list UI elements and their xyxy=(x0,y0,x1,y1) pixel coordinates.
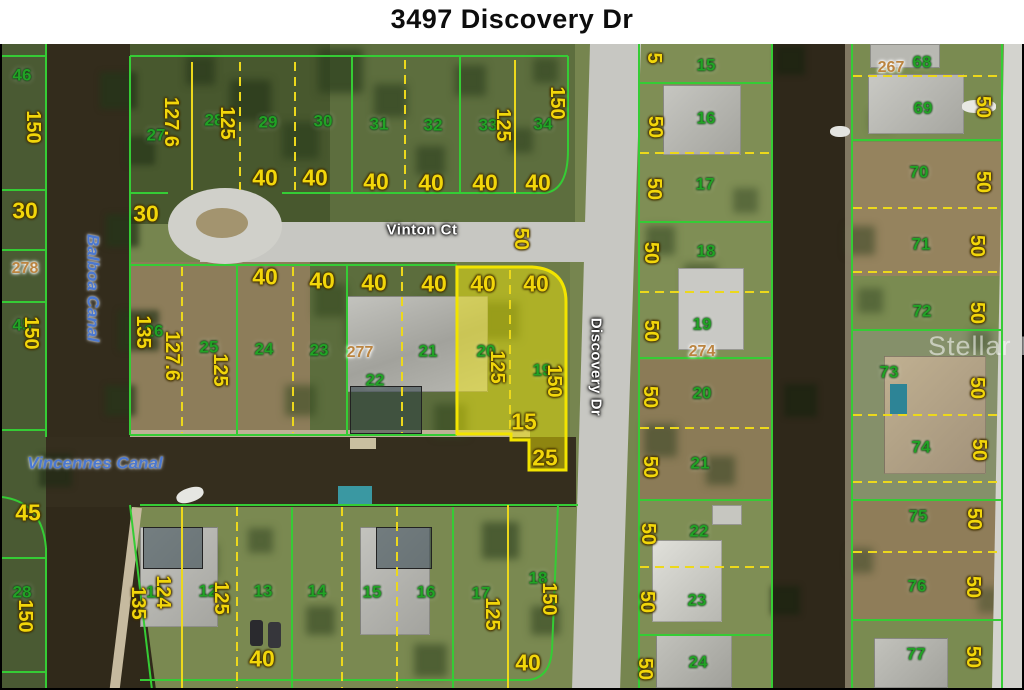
terrain-north-block-east xyxy=(330,44,575,224)
boat-lot-69 xyxy=(962,100,996,113)
concrete-pad-lot-19 xyxy=(678,268,744,350)
house-lot-24 xyxy=(656,634,732,688)
pool-lot-73 xyxy=(890,384,907,414)
house-lot-22-23 xyxy=(652,540,722,622)
pool-cage-lot-15-16 xyxy=(376,527,432,569)
house-lot-73-74 xyxy=(884,356,986,474)
map-area: 4627282930313233341516171819202122232468… xyxy=(0,0,1024,690)
house-lot-16 xyxy=(663,85,741,155)
terrain-south-block-dirt xyxy=(130,262,310,437)
balboa-canal-water xyxy=(46,44,130,437)
right-canal-water xyxy=(772,44,852,690)
seawall-north-bank xyxy=(130,430,530,437)
stellar-mls-watermark: Stellar MLS xyxy=(928,331,1024,362)
mls-map-screenshot: 3497 Discovery Dr xyxy=(0,0,1024,690)
terrain-left-strip xyxy=(0,44,46,690)
title-bar: 3497 Discovery Dr xyxy=(0,0,1024,44)
car-2 xyxy=(268,622,281,648)
culdesac-island xyxy=(196,208,248,238)
house-top-right-partial xyxy=(870,44,940,68)
house-lot-69 xyxy=(868,74,964,134)
house-lot-277 xyxy=(346,296,488,392)
pool-cage-lot-11 xyxy=(143,527,203,569)
terrain-far-right-dirt-70-71 xyxy=(852,142,1002,276)
shed-lot-22 xyxy=(712,505,742,525)
page-title: 3497 Discovery Dr xyxy=(0,4,1024,35)
car-1 xyxy=(250,620,263,646)
terrain-right-column-dirt xyxy=(640,360,772,500)
house-lot-77 xyxy=(874,638,948,688)
terrain-far-right-dirt-75-76 xyxy=(852,500,1002,620)
teal-shed xyxy=(338,486,372,504)
pool-cage-lot-277 xyxy=(350,386,422,434)
dock-lot-21 xyxy=(350,438,376,449)
seawall-right-canal xyxy=(845,44,852,690)
boat-right-canal xyxy=(830,126,850,137)
vincennes-canal-water xyxy=(46,437,576,507)
